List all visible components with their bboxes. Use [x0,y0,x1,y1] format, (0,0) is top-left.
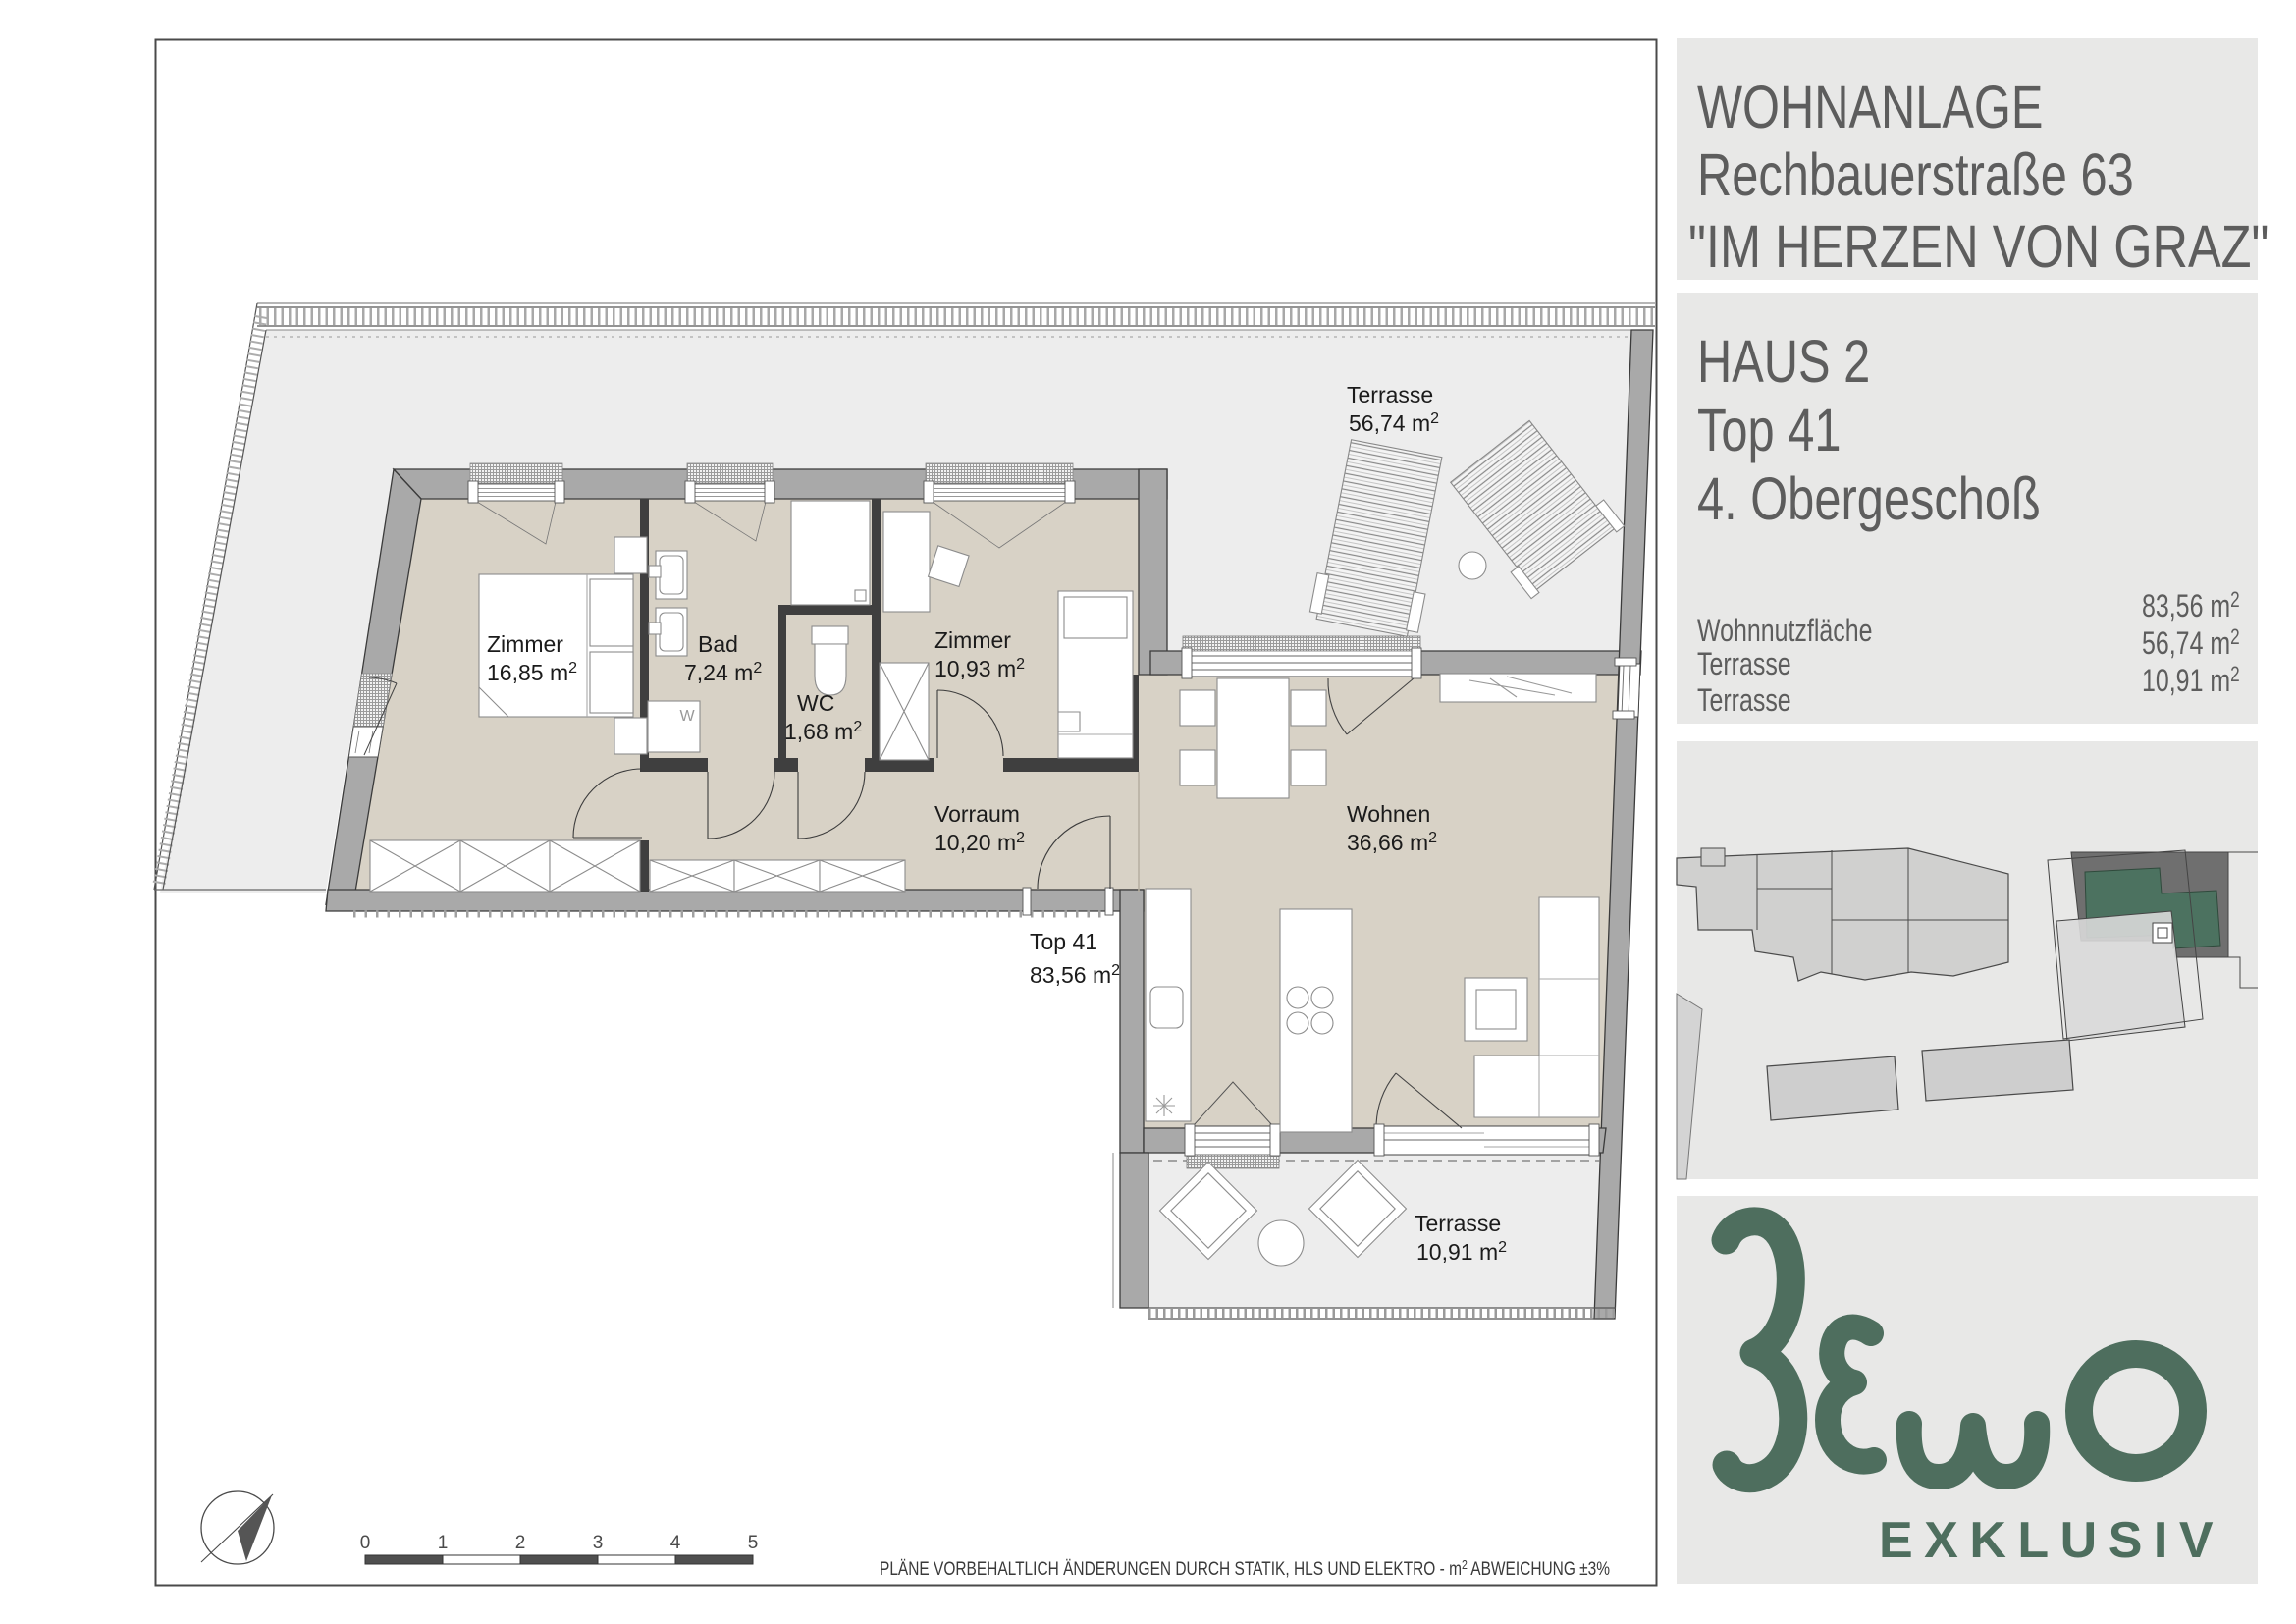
svg-text:Top 41: Top 41 [1030,929,1097,954]
svg-text:PLÄNE VORBEHALTLICH ÄNDERUNGEN: PLÄNE VORBEHALTLICH ÄNDERUNGEN DURCH STA… [880,1557,1610,1580]
svg-text:10,91 m2: 10,91 m2 [1416,1239,1507,1265]
svg-text:1,68 m2: 1,68 m2 [784,719,862,744]
svg-text:16,85 m2: 16,85 m2 [487,660,577,685]
svg-text:Terrasse: Terrasse [1347,382,1433,407]
svg-text:83,56 m2: 83,56 m2 [1030,962,1120,988]
svg-text:36,66 m2: 36,66 m2 [1347,830,1437,855]
svg-text:56,74 m2: 56,74 m2 [1349,410,1439,436]
svg-text:Bad: Bad [698,631,738,657]
svg-text:10,93 m2: 10,93 m2 [934,656,1025,681]
svg-text:Wohnnutzfläche: Wohnnutzfläche [1697,614,1872,649]
svg-text:10,20 m2: 10,20 m2 [934,830,1025,855]
svg-text:EXKLUSIV: EXKLUSIV [1879,1512,2224,1569]
svg-text:4. Obergeschoß: 4. Obergeschoß [1697,465,2041,532]
svg-text:Terrasse: Terrasse [1415,1211,1501,1236]
svg-text:7,24 m2: 7,24 m2 [684,660,762,685]
svg-text:WOHNANLAGE: WOHNANLAGE [1697,74,2043,140]
svg-text:56,74 m2: 56,74 m2 [2142,625,2240,662]
svg-text:"IM HERZEN VON GRAZ": "IM HERZEN VON GRAZ" [1688,212,2269,280]
svg-text:Terrasse: Terrasse [1697,647,1791,682]
svg-text:1: 1 [438,1533,449,1553]
svg-text:3: 3 [593,1533,604,1553]
svg-text:HAUS 2: HAUS 2 [1697,328,1870,395]
svg-text:Terrasse: Terrasse [1697,683,1791,719]
svg-text:10,91 m2: 10,91 m2 [2142,663,2240,699]
svg-text:83,56 m2: 83,56 m2 [2142,588,2240,624]
svg-text:Zimmer: Zimmer [934,627,1011,653]
svg-text:5: 5 [748,1533,759,1553]
svg-text:W: W [679,708,695,725]
svg-text:Wohnen: Wohnen [1347,801,1430,827]
svg-text:WC: WC [797,690,834,716]
svg-text:4: 4 [670,1533,681,1553]
svg-text:Vorraum: Vorraum [934,801,1020,827]
svg-text:2: 2 [515,1533,526,1553]
svg-text:Rechbauerstraße 63: Rechbauerstraße 63 [1697,141,2134,208]
svg-text:Zimmer: Zimmer [487,631,563,657]
svg-text:Top 41: Top 41 [1697,397,1841,463]
svg-text:0: 0 [360,1533,371,1553]
